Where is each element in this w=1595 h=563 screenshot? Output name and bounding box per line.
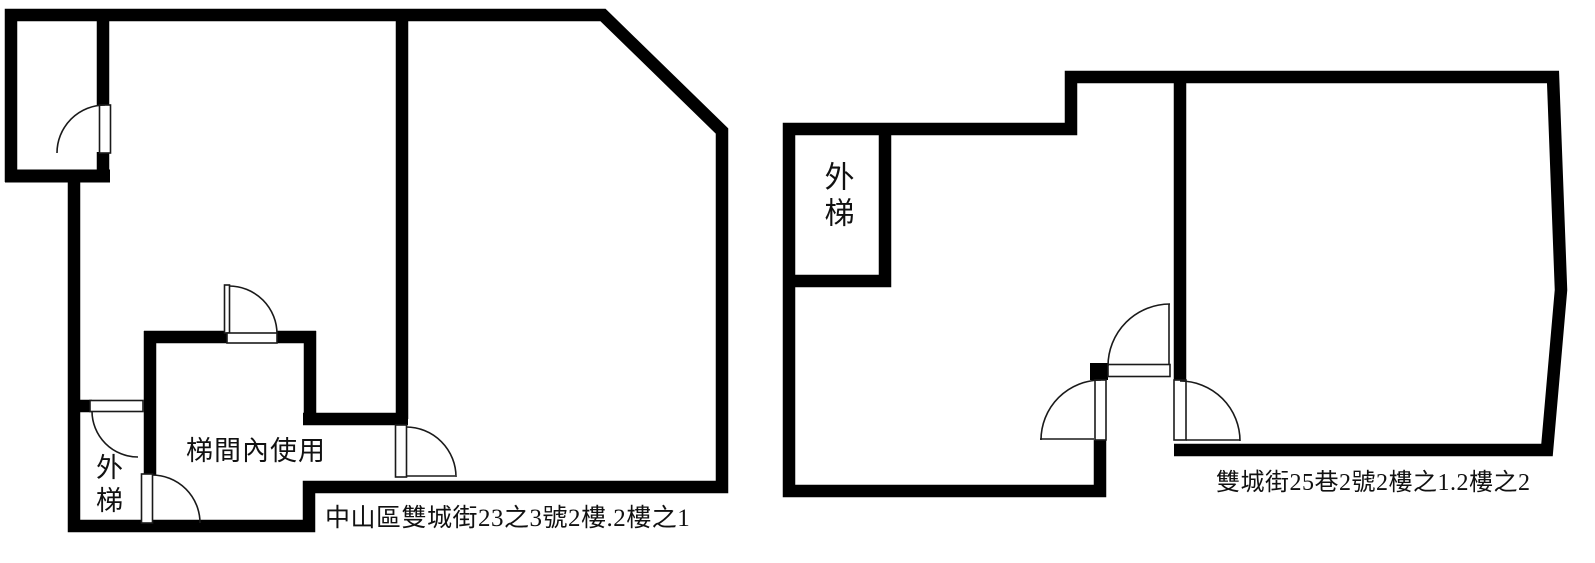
door-swing-arc (57, 105, 105, 153)
door-leaf (90, 401, 143, 412)
room-label-stairwell-use: 梯間內使用 (186, 436, 326, 467)
floorplan-canvas: 梯間內使用 外梯 外梯 中山區雙城街23之3號2樓.2樓之1 雙城街25巷2號2… (0, 0, 1595, 563)
door-leaf (1095, 380, 1106, 440)
left-floorplan (5, 15, 722, 526)
door-swing-arc (1041, 380, 1101, 440)
right-plan-address-caption: 雙城街25巷2號2樓之1.2樓之2 (1216, 470, 1531, 498)
door-threshold (227, 333, 277, 343)
right-plan-vestibule-stub (1090, 363, 1108, 380)
door-leaf (396, 425, 407, 477)
door-swing-arc (406, 427, 456, 477)
door-swing-arc (1180, 381, 1240, 441)
door-leaf (100, 105, 111, 153)
door-swing-arc (92, 411, 138, 457)
room-label-external-stair-right: 外梯 (818, 161, 853, 233)
left-plan-outer-wall (11, 15, 722, 526)
door-swing-arc (229, 286, 277, 334)
door-leaf (225, 285, 230, 333)
door-leaf (142, 474, 153, 523)
door-leaf (1174, 380, 1186, 440)
right-floorplan (783, 71, 1561, 491)
door-swing-arc (1108, 304, 1170, 366)
door-swing-arc (152, 475, 200, 523)
door-leaf (1108, 365, 1170, 377)
room-label-external-stair-left: 外梯 (91, 453, 122, 519)
left-plan-address-caption: 中山區雙城街23之3號2樓.2樓之1 (325, 505, 690, 534)
